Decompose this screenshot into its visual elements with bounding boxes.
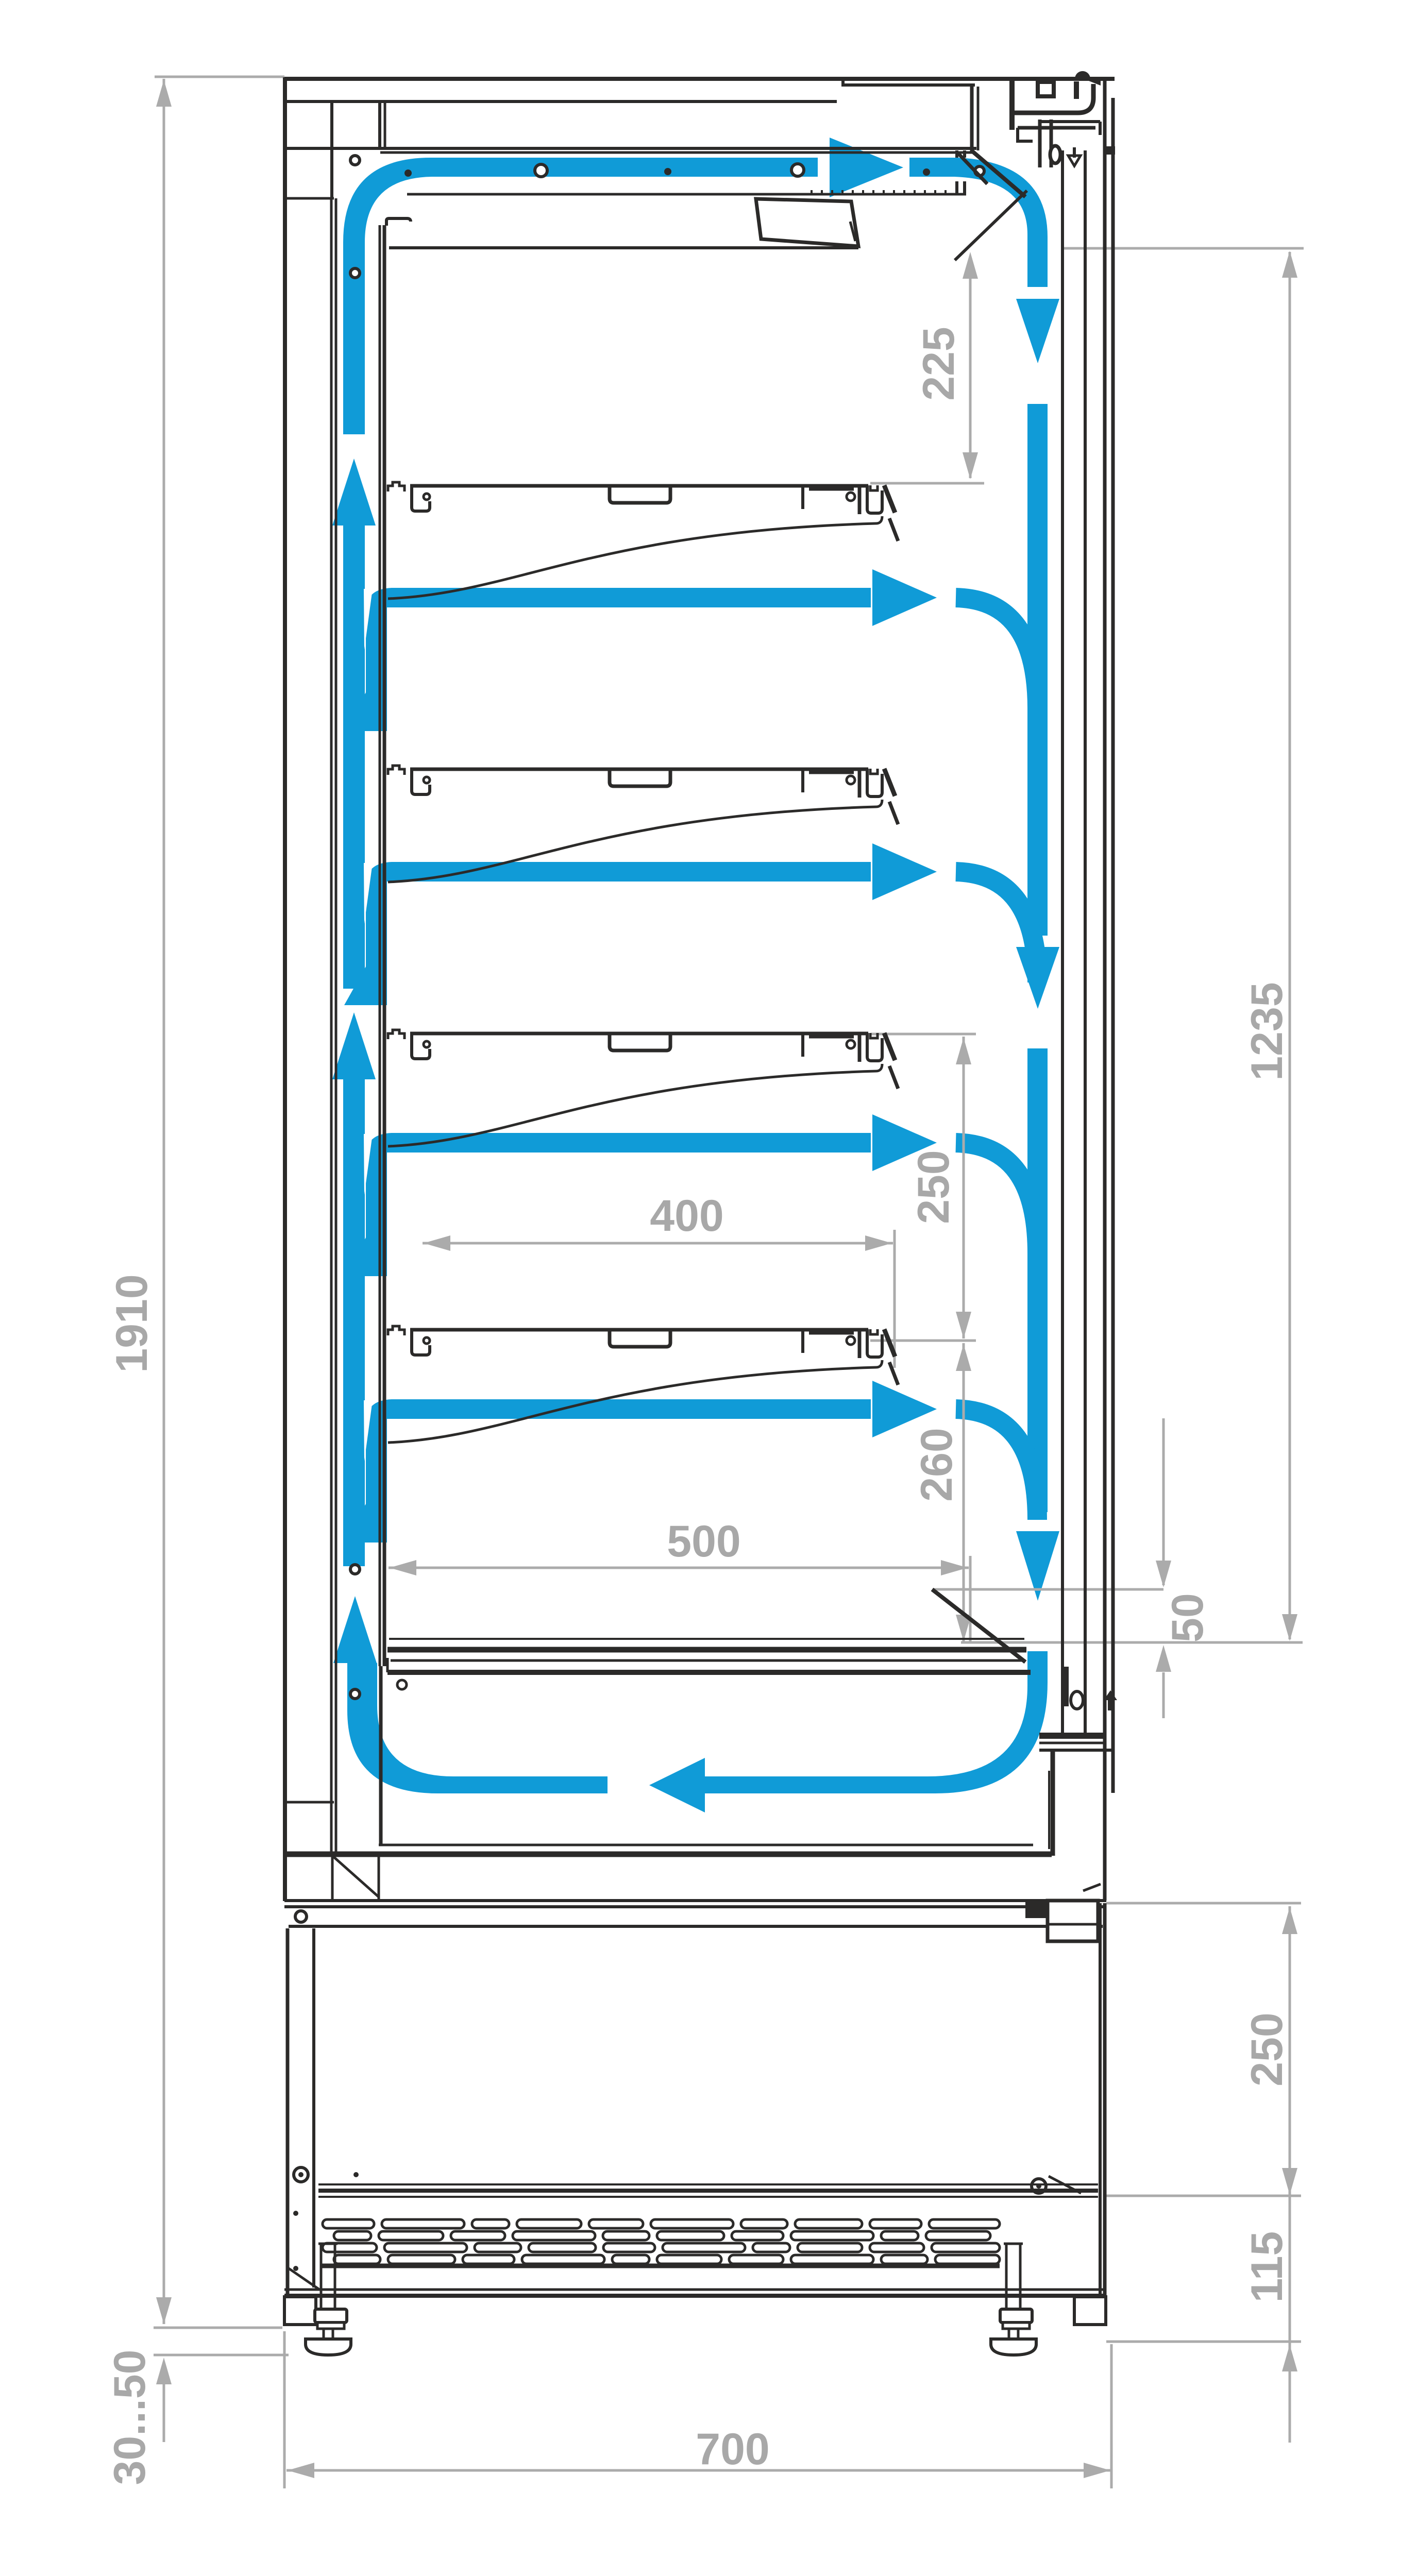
svg-text:250: 250 [1242, 2012, 1292, 2087]
svg-text:225: 225 [914, 327, 964, 401]
svg-text:115: 115 [1242, 2231, 1292, 2303]
svg-text:1235: 1235 [1242, 982, 1292, 1080]
svg-text:1910: 1910 [107, 1274, 157, 1372]
svg-text:260: 260 [912, 1428, 961, 1502]
svg-text:400: 400 [650, 1191, 724, 1241]
svg-text:50: 50 [1163, 1593, 1212, 1642]
svg-text:250: 250 [909, 1150, 958, 1224]
svg-text:700: 700 [696, 2425, 770, 2474]
svg-text:30...50: 30...50 [105, 2350, 155, 2485]
svg-text:500: 500 [667, 1517, 741, 1566]
